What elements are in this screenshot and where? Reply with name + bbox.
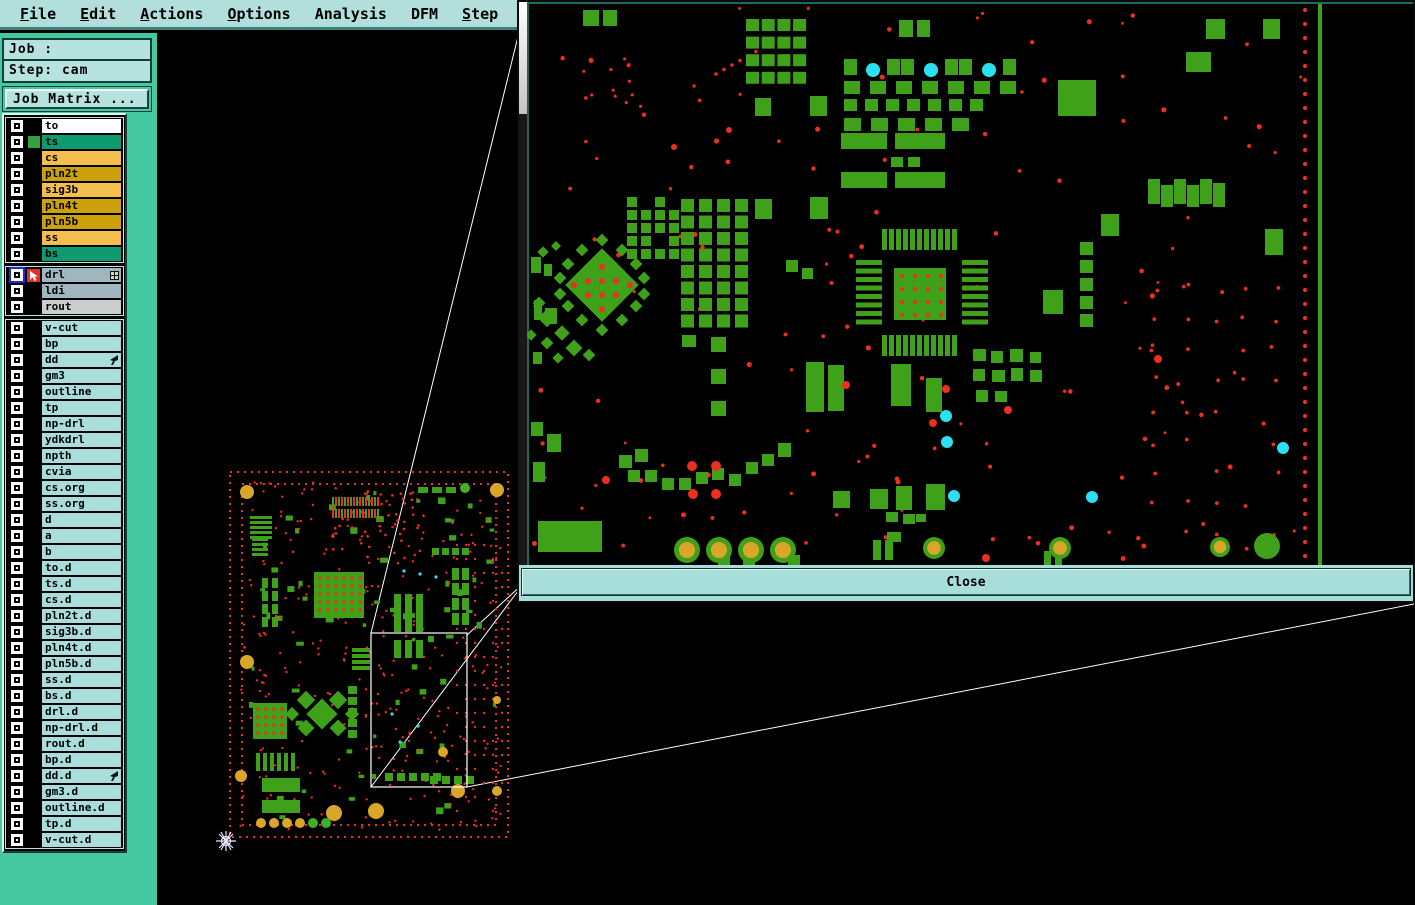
layer-checkbox-cell <box>7 738 27 750</box>
layer-checkbox-bp.d[interactable] <box>11 754 23 766</box>
layer-checkbox-v-cut[interactable] <box>11 322 23 334</box>
checkbox-glyph <box>14 581 20 587</box>
layer-checkbox-cell <box>7 200 27 212</box>
layer-checkbox-cell <box>7 594 27 606</box>
layer-row-pln2t[interactable]: pln2t <box>7 167 122 181</box>
layer-indicator-bs.d <box>27 690 42 703</box>
layer-checkbox-cell <box>7 786 27 798</box>
layer-indicator-npth <box>27 450 42 463</box>
layer-row-pln5b.d[interactable]: pln5b.d <box>7 657 122 671</box>
layer-label-to.d[interactable]: to.d <box>42 561 121 575</box>
close-button[interactable]: Close <box>521 568 1411 596</box>
layer-indicator-tp <box>27 402 42 415</box>
layer-checkbox-to.d[interactable] <box>11 562 23 574</box>
layer-label-rout[interactable]: rout <box>42 300 121 314</box>
layer-checkbox-tp.d[interactable] <box>11 818 23 830</box>
layer-group-misc-layers: v-cutbpddgm3outlinetpnp-drlydkdrlnpthcvi… <box>5 319 124 849</box>
layer-checkbox-cs.d[interactable] <box>11 594 23 606</box>
layer-row-rout.d[interactable]: rout.d <box>7 737 122 751</box>
layer-indicator-ss.d <box>27 674 42 687</box>
layer-label-gm3.d[interactable]: gm3.d <box>42 785 121 799</box>
layer-indicator-cs.org <box>27 482 42 495</box>
layer-row-outline[interactable]: outline <box>7 385 122 399</box>
layer-label-np-drl[interactable]: np-drl <box>42 417 121 431</box>
checkbox-glyph <box>14 805 20 811</box>
checkbox-glyph <box>14 629 20 635</box>
layer-row-np-drl.d[interactable]: np-drl.d <box>7 721 122 735</box>
layer-checkbox-cs[interactable] <box>11 152 23 164</box>
checkbox-glyph <box>14 709 20 715</box>
layer-label-cs.d[interactable]: cs.d <box>42 593 121 607</box>
layer-checkbox-cell <box>7 658 27 670</box>
checkbox-glyph <box>14 613 20 619</box>
layer-label-bp[interactable]: bp <box>42 337 121 351</box>
layer-checkbox-np-drl.d[interactable] <box>11 722 23 734</box>
layer-label-dd.d[interactable]: dd.d <box>42 769 121 783</box>
layer-label-to[interactable]: to <box>42 119 121 133</box>
layer-checkbox-cell <box>7 626 27 638</box>
job-name-box: Job : 6v2g2ly5a0 <box>2 38 152 61</box>
checkbox-glyph <box>14 139 20 145</box>
layer-row-to.d[interactable]: to.d <box>7 561 122 575</box>
layer-checkbox-cell <box>7 754 27 766</box>
layer-checkbox-sig3b[interactable] <box>11 184 23 196</box>
layer-checkbox-cell <box>7 642 27 654</box>
layer-checkbox-rout.d[interactable] <box>11 738 23 750</box>
layer-checkbox-dd[interactable] <box>11 354 23 366</box>
layer-indicator-drl <box>27 269 42 282</box>
layer-label-ss.d[interactable]: ss.d <box>42 673 121 687</box>
layer-row-rout[interactable]: rout <box>7 300 122 314</box>
layer-indicator-pln4t <box>27 200 42 213</box>
checkbox-glyph <box>14 171 20 177</box>
layer-checkbox-ss.d[interactable] <box>11 674 23 686</box>
checkbox-glyph <box>14 325 20 331</box>
matrix-grid-icon <box>110 271 119 280</box>
job-matrix-frame: Job Matrix ... <box>2 86 152 112</box>
layer-checkbox-outline.d[interactable] <box>11 802 23 814</box>
layer-checkbox-pln4t[interactable] <box>11 200 23 212</box>
layer-indicator-pln4t.d <box>27 642 42 655</box>
layer-label-drl[interactable]: drl <box>42 268 121 282</box>
checkbox-glyph <box>14 251 20 257</box>
layer-checkbox-cell <box>7 722 27 734</box>
layer-row-ydkdrl[interactable]: ydkdrl <box>7 433 122 447</box>
checkbox-glyph <box>14 773 20 779</box>
layer-label-ts[interactable]: ts <box>42 135 121 149</box>
layer-label-outline.d[interactable]: outline.d <box>42 801 121 815</box>
layer-checkbox-cell <box>7 301 27 313</box>
layer-checkbox-cell <box>7 466 27 478</box>
checkbox-glyph <box>14 485 20 491</box>
layer-indicator-cs.d <box>27 594 42 607</box>
layer-checkbox-cell <box>7 610 27 622</box>
checkbox-glyph <box>14 123 20 129</box>
layer-list-panel: totscspln2tsig3bpln4tpln5bssbsdrlldirout… <box>2 113 127 853</box>
layer-row-ss.d[interactable]: ss.d <box>7 673 122 687</box>
layer-row-b[interactable]: b <box>7 545 122 559</box>
checkbox-glyph <box>14 304 20 310</box>
layer-label-gm3[interactable]: gm3 <box>42 369 121 383</box>
layer-indicator-gm3.d <box>27 786 42 799</box>
layer-row-a[interactable]: a <box>7 529 122 543</box>
layer-indicator-rout.d <box>27 738 42 751</box>
checkbox-glyph <box>14 405 20 411</box>
layer-pointer-icon <box>109 355 119 365</box>
layer-checkbox-np-drl[interactable] <box>11 418 23 430</box>
layer-indicator-d <box>27 514 42 527</box>
layer-row-np-drl[interactable]: np-drl <box>7 417 122 431</box>
layer-checkbox-pln5b.d[interactable] <box>11 658 23 670</box>
layer-checkbox-cell <box>7 770 27 782</box>
layer-label-bp.d[interactable]: bp.d <box>42 753 121 767</box>
layer-indicator-outline.d <box>27 802 42 815</box>
checkbox-glyph <box>14 597 20 603</box>
checkbox-glyph <box>14 837 20 843</box>
layer-label-rout.d[interactable]: rout.d <box>42 737 121 751</box>
checkbox-glyph <box>14 789 20 795</box>
layer-indicator-pln5b.d <box>27 658 42 671</box>
layer-indicator-np-drl <box>27 418 42 431</box>
layer-row-gm3.d[interactable]: gm3.d <box>7 785 122 799</box>
layer-indicator-bp.d <box>27 754 42 767</box>
layer-row-cs.d[interactable]: cs.d <box>7 593 122 607</box>
checkbox-glyph <box>14 661 20 667</box>
layer-row-ts.d[interactable]: ts.d <box>7 577 122 591</box>
layer-checkbox-drl[interactable] <box>11 269 23 281</box>
layer-label-bs.d[interactable]: bs.d <box>42 689 121 703</box>
layer-checkbox-d[interactable] <box>11 514 23 526</box>
menu-item-edit[interactable]: Edit <box>68 5 128 23</box>
layer-label-bs[interactable]: bs <box>42 247 121 261</box>
layer-indicator-a <box>27 530 42 543</box>
layer-row-outline.d[interactable]: outline.d <box>7 801 122 815</box>
layer-checkbox-cell <box>7 168 27 180</box>
layer-checkbox-cs.org[interactable] <box>11 482 23 494</box>
checkbox-glyph <box>14 235 20 241</box>
layer-label-cvia[interactable]: cvia <box>42 465 121 479</box>
layer-checkbox-to[interactable] <box>11 120 23 132</box>
layer-row-ldi[interactable]: ldi <box>7 284 122 298</box>
layer-checkbox-cell <box>7 354 27 366</box>
layer-group-board-layers: totscspln2tsig3bpln4tpln5bssbs <box>5 117 124 263</box>
layer-checkbox-gm3.d[interactable] <box>11 786 23 798</box>
checkbox-glyph <box>14 203 20 209</box>
layer-label-drl.d[interactable]: drl.d <box>42 705 121 719</box>
layer-row-pln2t.d[interactable]: pln2t.d <box>7 609 122 623</box>
popup-pcb-canvas[interactable] <box>527 2 1413 565</box>
layer-checkbox-cell <box>7 818 27 830</box>
layer-label-outline[interactable]: outline <box>42 385 121 399</box>
layer-indicator-v-cut.d <box>27 834 42 847</box>
layer-row-ts[interactable]: ts <box>7 135 122 149</box>
layer-checkbox-cell <box>7 216 27 228</box>
menu-item-step[interactable]: Step <box>450 5 510 23</box>
layer-label-ldi[interactable]: ldi <box>42 284 121 298</box>
layer-row-ss[interactable]: ss <box>7 231 122 245</box>
menu-item-analysis[interactable]: Analysis <box>303 5 399 23</box>
layer-indicator-outline <box>27 386 42 399</box>
layer-indicator-cvia <box>27 466 42 479</box>
drl-cursor-icon <box>27 269 40 282</box>
layer-label-pln4t[interactable]: pln4t <box>42 199 121 213</box>
layer-indicator-np-drl.d <box>27 722 42 735</box>
layer-checkbox-npth[interactable] <box>11 450 23 462</box>
layer-row-pln4t.d[interactable]: pln4t.d <box>7 641 122 655</box>
layer-indicator-to <box>27 120 42 133</box>
layer-indicator-dd.d <box>27 770 42 783</box>
menu-item-actions[interactable]: Actions <box>128 5 215 23</box>
layer-checkbox-cell <box>7 184 27 196</box>
layer-checkbox-bp[interactable] <box>11 338 23 350</box>
layer-indicator-sig3b.d <box>27 626 42 639</box>
layer-row-dd[interactable]: dd <box>7 353 122 367</box>
layer-group-drill-layers: drlldirout <box>5 266 124 316</box>
checkbox-glyph <box>14 517 20 523</box>
checkbox-glyph <box>14 288 20 294</box>
layer-indicator-to.d <box>27 562 42 575</box>
layer-label-sig3b[interactable]: sig3b <box>42 183 121 197</box>
popup-vertical-scrollbar[interactable] <box>519 2 527 565</box>
layer-indicator-dd <box>27 354 42 367</box>
layer-checkbox-bs.d[interactable] <box>11 690 23 702</box>
checkbox-glyph <box>14 421 20 427</box>
layer-checkbox-cell <box>7 450 27 462</box>
layer-row-cs.org[interactable]: cs.org <box>7 481 122 495</box>
layer-label-cs.org[interactable]: cs.org <box>42 481 121 495</box>
layer-checkbox-cell <box>7 482 27 494</box>
layer-label-pln5b.d[interactable]: pln5b.d <box>42 657 121 671</box>
layer-checkbox-cell <box>7 285 27 297</box>
layer-checkbox-v-cut.d[interactable] <box>11 834 23 846</box>
layer-row-bp[interactable]: bp <box>7 337 122 351</box>
layer-checkbox-cell <box>7 136 27 148</box>
application-window: FileEditActionsOptionsAnalysisDFMStepRou… <box>0 0 1415 905</box>
layer-checkbox-cell <box>7 370 27 382</box>
layer-indicator-rout <box>27 301 42 314</box>
layer-row-cs[interactable]: cs <box>7 151 122 165</box>
checkbox-glyph <box>14 469 20 475</box>
layer-checkbox-drl.d[interactable] <box>11 706 23 718</box>
layer-checkbox-tp[interactable] <box>11 402 23 414</box>
layer-indicator-ydkdrl <box>27 434 42 447</box>
layer-label-sig3b.d[interactable]: sig3b.d <box>42 625 121 639</box>
layer-label-pln2t[interactable]: pln2t <box>42 167 121 181</box>
checkbox-glyph <box>14 741 20 747</box>
layer-indicator-bp <box>27 338 42 351</box>
layer-checkbox-pln4t.d[interactable] <box>11 642 23 654</box>
layer-row-drl.d[interactable]: drl.d <box>7 705 122 719</box>
job-matrix-button[interactable]: Job Matrix ... <box>5 89 149 109</box>
layer-row-sig3b[interactable]: sig3b <box>7 183 122 197</box>
layer-label-tp[interactable]: tp <box>42 401 121 415</box>
layer-indicator-bs <box>27 248 42 261</box>
layer-checkbox-cell <box>7 322 27 334</box>
menu-item-options[interactable]: Options <box>215 5 302 23</box>
layer-row-gm3[interactable]: gm3 <box>7 369 122 383</box>
layer-checkbox-bs[interactable] <box>11 248 23 260</box>
checkbox-glyph <box>14 533 20 539</box>
layer-checkbox-cell <box>7 530 27 542</box>
checkbox-glyph <box>14 501 20 507</box>
layer-checkbox-cell <box>7 674 27 686</box>
layer-checkbox-dd.d[interactable] <box>11 770 23 782</box>
layer-indicator-drl.d <box>27 706 42 719</box>
menu-item-file[interactable]: File <box>8 5 68 23</box>
layer-checkbox-cell <box>7 152 27 164</box>
layer-checkbox-a[interactable] <box>11 530 23 542</box>
layer-row-bs[interactable]: bs <box>7 247 122 261</box>
layer-checkbox-cell <box>7 120 27 132</box>
sidebar: Job : 6v2g2ly5a0 Step: cam Job Matrix ..… <box>0 33 157 905</box>
layer-checkbox-pln2t[interactable] <box>11 168 23 180</box>
layer-indicator-v-cut <box>27 322 42 335</box>
layer-label-ts.d[interactable]: ts.d <box>42 577 121 591</box>
layer-row-pln5b[interactable]: pln5b <box>7 215 122 229</box>
checkbox-glyph <box>14 272 20 278</box>
layer-checkbox-b[interactable] <box>11 546 23 558</box>
layer-indicator-ldi <box>27 285 42 298</box>
layer-indicator-gm3 <box>27 370 42 383</box>
checkbox-glyph <box>14 757 20 763</box>
layer-row-tp[interactable]: tp <box>7 401 122 415</box>
layer-checkbox-ss.org[interactable] <box>11 498 23 510</box>
layer-indicator-pln2t.d <box>27 610 42 623</box>
layer-label-d[interactable]: d <box>42 513 121 527</box>
checkbox-glyph <box>14 389 20 395</box>
popup-canvas-area[interactable] <box>527 2 1413 565</box>
layer-label-v-cut.d[interactable]: v-cut.d <box>42 833 121 847</box>
layer-checkbox-cell <box>7 562 27 574</box>
layer-row-bs.d[interactable]: bs.d <box>7 689 122 703</box>
checkbox-glyph <box>14 219 20 225</box>
layer-label-pln4t.d[interactable]: pln4t.d <box>42 641 121 655</box>
layer-checkbox-cell <box>7 232 27 244</box>
layer-checkbox-cell <box>7 514 27 526</box>
layer-row-cvia[interactable]: cvia <box>7 465 122 479</box>
layer-label-ydkdrl[interactable]: ydkdrl <box>42 433 121 447</box>
layer-checkbox-cell <box>7 338 27 350</box>
layer-indicator-ss <box>27 232 42 245</box>
layer-row-ss.org[interactable]: ss.org <box>7 497 122 511</box>
checkbox-glyph <box>14 187 20 193</box>
zoom-popup-window: Close <box>517 0 1415 603</box>
layer-indicator-ts <box>27 136 42 149</box>
layer-label-ss.org[interactable]: ss.org <box>42 497 121 511</box>
checkbox-glyph <box>14 155 20 161</box>
layer-row-v-cut[interactable]: v-cut <box>7 321 122 335</box>
layer-row-npth[interactable]: npth <box>7 449 122 463</box>
layer-checkbox-ss[interactable] <box>11 232 23 244</box>
checkbox-glyph <box>14 693 20 699</box>
layer-checkbox-ts[interactable] <box>11 136 23 148</box>
layer-checkbox-cell <box>7 248 27 260</box>
layer-label-np-drl.d[interactable]: np-drl.d <box>42 721 121 735</box>
layer-label-v-cut[interactable]: v-cut <box>42 321 121 335</box>
layer-label-tp.d[interactable]: tp.d <box>42 817 121 831</box>
layer-indicator-ss.org <box>27 498 42 511</box>
popup-scrollbar-thumb[interactable] <box>519 2 527 114</box>
layer-indicator-sig3b <box>27 184 42 197</box>
origin-star-icon <box>216 831 236 851</box>
layer-label-ss[interactable]: ss <box>42 231 121 245</box>
layer-label-npth[interactable]: npth <box>42 449 121 463</box>
layer-checkbox-cell <box>7 269 27 281</box>
popup-close-band: Close <box>519 565 1413 601</box>
layer-row-to[interactable]: to <box>7 119 122 133</box>
layer-checkbox-cell <box>7 690 27 702</box>
layer-checkbox-cell <box>7 706 27 718</box>
layer-row-pln4t[interactable]: pln4t <box>7 199 122 213</box>
layer-indicator-tp.d <box>27 818 42 831</box>
layer-checkbox-gm3[interactable] <box>11 370 23 382</box>
checkbox-glyph <box>14 821 20 827</box>
layer-label-pln2t.d[interactable]: pln2t.d <box>42 609 121 623</box>
checkbox-glyph <box>14 373 20 379</box>
layer-row-sig3b.d[interactable]: sig3b.d <box>7 625 122 639</box>
layer-checkbox-ydkdrl[interactable] <box>11 434 23 446</box>
layer-label-a[interactable]: a <box>42 529 121 543</box>
layer-checkbox-ldi[interactable] <box>11 285 23 297</box>
layer-indicator-ts.d <box>27 578 42 591</box>
layer-checkbox-sig3b.d[interactable] <box>11 626 23 638</box>
layer-indicator-pln5b <box>27 216 42 229</box>
layer-label-cs[interactable]: cs <box>42 151 121 165</box>
layer-swatch <box>28 136 40 148</box>
layer-row-v-cut.d[interactable]: v-cut.d <box>7 833 122 847</box>
checkbox-glyph <box>14 437 20 443</box>
layer-row-bp.d[interactable]: bp.d <box>7 753 122 767</box>
checkbox-glyph <box>14 677 20 683</box>
layer-row-drl[interactable]: drl <box>7 268 122 282</box>
checkbox-glyph <box>14 565 20 571</box>
layer-indicator-cs <box>27 152 42 165</box>
layer-checkbox-pln5b[interactable] <box>11 216 23 228</box>
checkbox-glyph <box>14 341 20 347</box>
layer-row-d[interactable]: d <box>7 513 122 527</box>
menu-item-dfm[interactable]: DFM <box>399 5 450 23</box>
layer-checkbox-rout[interactable] <box>11 301 23 313</box>
layer-row-tp.d[interactable]: tp.d <box>7 817 122 831</box>
layer-checkbox-cell <box>7 386 27 398</box>
layer-checkbox-cell <box>7 434 27 446</box>
step-name-box: Step: cam <box>2 60 152 83</box>
layer-indicator-pln2t <box>27 168 42 181</box>
checkbox-glyph <box>14 357 20 363</box>
layer-checkbox-cell <box>7 834 27 846</box>
layer-checkbox-cell <box>7 418 27 430</box>
layer-row-dd.d[interactable]: dd.d <box>7 769 122 783</box>
checkbox-glyph <box>14 453 20 459</box>
layer-indicator-b <box>27 546 42 559</box>
layer-pointer-icon <box>109 771 119 781</box>
layer-checkbox-cell <box>7 802 27 814</box>
layer-label-pln5b[interactable]: pln5b <box>42 215 121 229</box>
checkbox-glyph <box>14 549 20 555</box>
checkbox-glyph <box>14 645 20 651</box>
layer-label-b[interactable]: b <box>42 545 121 559</box>
layer-checkbox-cell <box>7 546 27 558</box>
layer-checkbox-ts.d[interactable] <box>11 578 23 590</box>
layer-checkbox-cell <box>7 402 27 414</box>
checkbox-glyph <box>14 725 20 731</box>
layer-checkbox-cvia[interactable] <box>11 466 23 478</box>
layer-label-dd[interactable]: dd <box>42 353 121 367</box>
layer-checkbox-cell <box>7 498 27 510</box>
layer-checkbox-pln2t.d[interactable] <box>11 610 23 622</box>
layer-checkbox-cell <box>7 578 27 590</box>
layer-checkbox-outline[interactable] <box>11 386 23 398</box>
